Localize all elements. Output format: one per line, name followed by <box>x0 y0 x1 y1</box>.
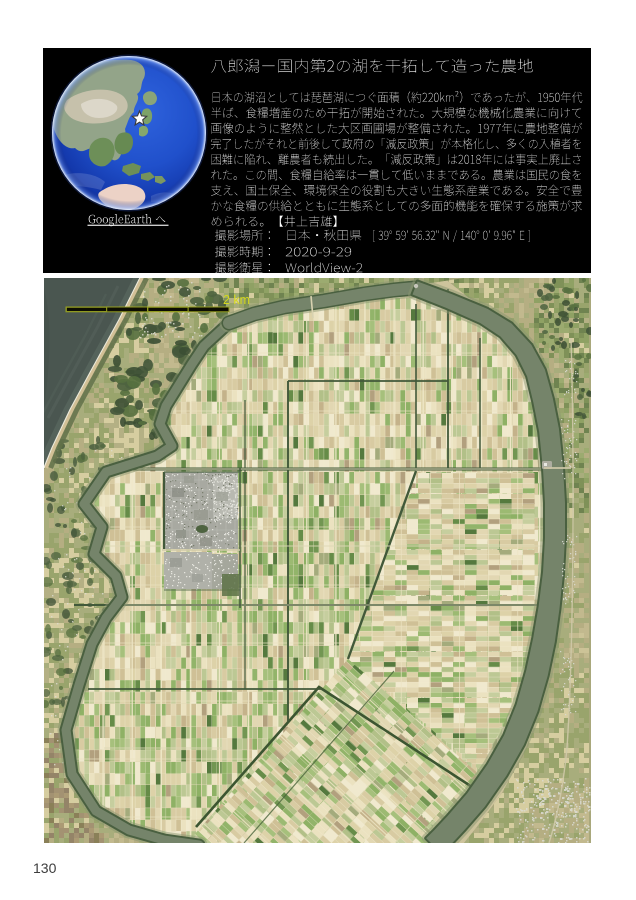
svg-text:2 km: 2 km <box>223 293 250 307</box>
